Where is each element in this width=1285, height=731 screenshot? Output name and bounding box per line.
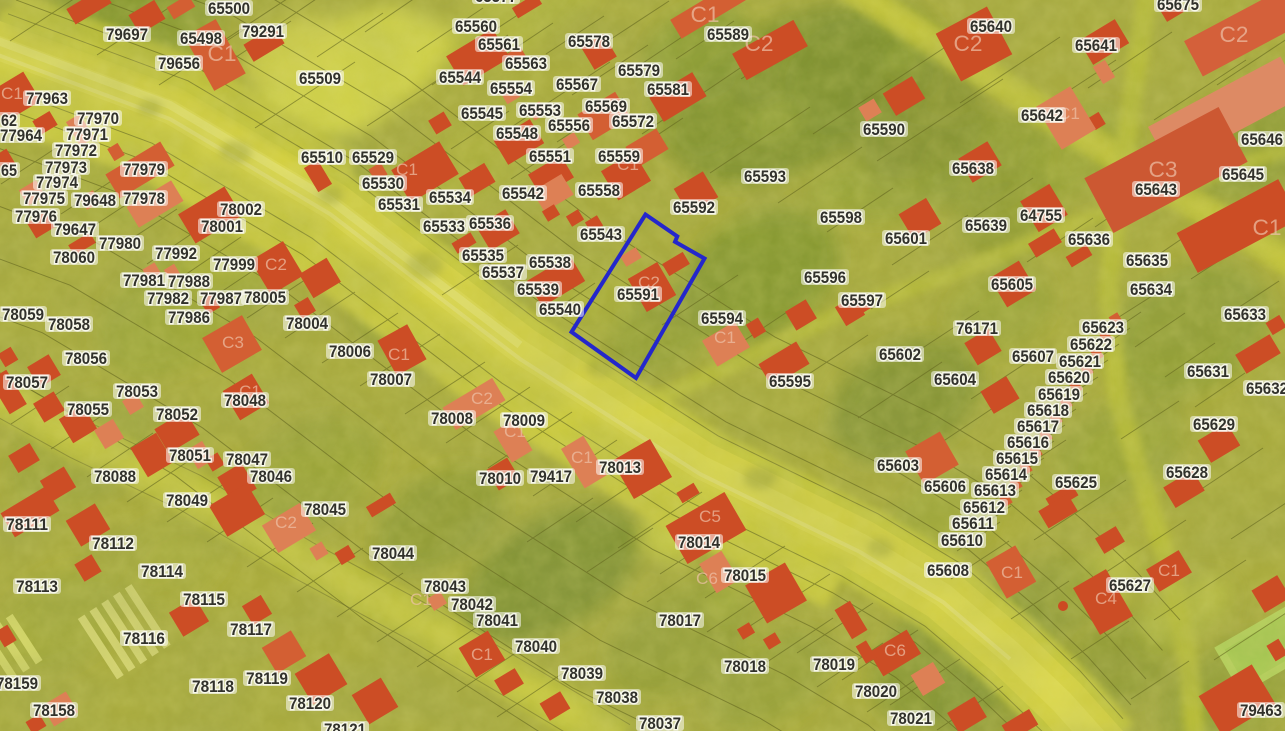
svg-text:65625: 65625 <box>1055 473 1097 492</box>
svg-text:C2: C2 <box>1220 22 1249 47</box>
svg-text:65510: 65510 <box>301 148 343 167</box>
svg-text:79648: 79648 <box>74 191 116 210</box>
svg-text:78006: 78006 <box>329 342 371 361</box>
svg-text:65560: 65560 <box>455 17 497 36</box>
svg-text:79291: 79291 <box>242 22 284 41</box>
svg-text:77979: 77979 <box>123 160 165 179</box>
svg-text:78053: 78053 <box>116 382 158 401</box>
svg-text:C6: C6 <box>696 569 718 588</box>
svg-text:C3: C3 <box>1149 157 1178 182</box>
svg-text:65563: 65563 <box>505 54 547 73</box>
svg-text:65500: 65500 <box>208 0 250 18</box>
svg-text:65639: 65639 <box>965 216 1007 235</box>
svg-text:78112: 78112 <box>92 534 134 553</box>
svg-text:76171: 76171 <box>956 319 998 338</box>
svg-text:65608: 65608 <box>927 561 969 580</box>
svg-text:65567: 65567 <box>556 75 598 94</box>
svg-text:79647: 79647 <box>54 220 96 239</box>
svg-text:65596: 65596 <box>804 268 846 287</box>
svg-text:78049: 78049 <box>166 491 208 510</box>
svg-text:65603: 65603 <box>877 456 919 475</box>
svg-text:65545: 65545 <box>461 104 503 123</box>
svg-text:79463: 79463 <box>1240 701 1282 720</box>
svg-text:77981: 77981 <box>123 271 165 290</box>
svg-text:65642: 65642 <box>1021 106 1063 125</box>
svg-text:65638: 65638 <box>952 159 994 178</box>
svg-text:65572: 65572 <box>612 112 654 131</box>
svg-text:65634: 65634 <box>1130 280 1172 299</box>
svg-text:C3: C3 <box>222 333 244 352</box>
svg-text:78013: 78013 <box>599 458 641 477</box>
svg-text:78056: 78056 <box>65 349 107 368</box>
svg-text:65597: 65597 <box>841 291 883 310</box>
svg-text:65643: 65643 <box>1135 180 1177 199</box>
svg-text:65556: 65556 <box>548 116 590 135</box>
svg-text:65633: 65633 <box>1224 305 1266 324</box>
svg-text:C5: C5 <box>699 507 721 526</box>
svg-text:65591: 65591 <box>617 285 659 304</box>
svg-text:78048: 78048 <box>224 391 266 410</box>
svg-text:65598: 65598 <box>820 208 862 227</box>
svg-text:65635: 65635 <box>1126 251 1168 270</box>
svg-text:65590: 65590 <box>863 120 905 139</box>
svg-text:65540: 65540 <box>539 300 581 319</box>
svg-text:65539: 65539 <box>517 280 559 299</box>
svg-text:65578: 65578 <box>568 32 610 51</box>
svg-text:65675: 65675 <box>1157 0 1199 14</box>
svg-text:65554: 65554 <box>490 79 532 98</box>
svg-text:65602: 65602 <box>879 345 921 364</box>
svg-text:78058: 78058 <box>48 315 90 334</box>
svg-text:C2: C2 <box>265 255 287 274</box>
svg-text:78119: 78119 <box>246 669 288 688</box>
svg-text:65542: 65542 <box>502 184 544 203</box>
svg-text:65641: 65641 <box>1075 36 1117 55</box>
svg-text:78046: 78046 <box>250 467 292 486</box>
svg-text:78041: 78041 <box>476 611 518 630</box>
svg-text:C1: C1 <box>471 645 493 664</box>
svg-text:78057: 78057 <box>6 373 48 392</box>
svg-text:65593: 65593 <box>744 167 786 186</box>
svg-text:65538: 65538 <box>529 253 571 272</box>
svg-text:C2: C2 <box>471 389 493 408</box>
svg-text:78020: 78020 <box>855 682 897 701</box>
svg-text:78015: 78015 <box>724 566 766 585</box>
svg-text:78055: 78055 <box>67 400 109 419</box>
svg-text:C1: C1 <box>691 2 720 27</box>
svg-text:65543: 65543 <box>580 225 622 244</box>
svg-text:78113: 78113 <box>16 577 58 596</box>
svg-text:65533: 65533 <box>423 217 465 236</box>
svg-text:78114: 78114 <box>141 562 183 581</box>
svg-text:62: 62 <box>1 111 17 130</box>
svg-text:65646: 65646 <box>1241 130 1283 149</box>
svg-text:65577: 65577 <box>475 0 517 6</box>
svg-text:78060: 78060 <box>53 248 95 267</box>
svg-text:65645: 65645 <box>1222 165 1264 184</box>
svg-text:65536: 65536 <box>469 214 511 233</box>
svg-text:77992: 77992 <box>155 244 197 263</box>
svg-text:78059: 78059 <box>2 305 44 324</box>
svg-text:78044: 78044 <box>372 544 414 563</box>
svg-text:78117: 78117 <box>230 620 272 639</box>
svg-text:79697: 79697 <box>106 25 148 44</box>
svg-text:77976: 77976 <box>15 207 57 226</box>
svg-text:77975: 77975 <box>23 189 65 208</box>
svg-text:65509: 65509 <box>299 69 341 88</box>
svg-text:65607: 65607 <box>1012 347 1054 366</box>
svg-text:65498: 65498 <box>180 29 222 48</box>
svg-text:78052: 78052 <box>156 405 198 424</box>
svg-text:78115: 78115 <box>183 590 225 609</box>
svg-text:78118: 78118 <box>192 677 234 696</box>
svg-text:78038: 78038 <box>596 688 638 707</box>
svg-text:78004: 78004 <box>286 314 328 333</box>
svg-text:78014: 78014 <box>678 533 720 552</box>
svg-text:65592: 65592 <box>673 198 715 217</box>
svg-text:65559: 65559 <box>598 147 640 166</box>
svg-text:77980: 77980 <box>99 234 141 253</box>
svg-text:78019: 78019 <box>813 655 855 674</box>
svg-text:64755: 64755 <box>1020 206 1062 225</box>
svg-text:78043: 78043 <box>424 577 466 596</box>
svg-text:78010: 78010 <box>479 469 521 488</box>
svg-text:78111: 78111 <box>6 515 48 534</box>
svg-text:C1: C1 <box>1158 561 1180 580</box>
svg-text:65636: 65636 <box>1068 230 1110 249</box>
svg-text:65531: 65531 <box>378 195 420 214</box>
svg-text:C2: C2 <box>275 513 297 532</box>
svg-text:78005: 78005 <box>244 288 286 307</box>
svg-text:C6: C6 <box>884 641 906 660</box>
svg-text:65640: 65640 <box>970 17 1012 36</box>
svg-text:65594: 65594 <box>701 309 743 328</box>
svg-text:C1: C1 <box>714 328 736 347</box>
svg-text:79417: 79417 <box>530 467 572 486</box>
svg-text:77986: 77986 <box>168 308 210 327</box>
svg-text:65530: 65530 <box>362 174 404 193</box>
svg-text:78158: 78158 <box>33 701 75 720</box>
svg-text:78120: 78120 <box>289 694 331 713</box>
svg-text:65558: 65558 <box>578 181 620 200</box>
svg-text:C1: C1 <box>1 84 23 103</box>
svg-text:65561: 65561 <box>478 35 520 54</box>
svg-text:78001: 78001 <box>201 217 243 236</box>
svg-text:77978: 77978 <box>123 189 165 208</box>
svg-text:78021: 78021 <box>890 709 932 728</box>
svg-text:C1: C1 <box>1253 215 1282 240</box>
svg-text:65544: 65544 <box>439 68 481 87</box>
svg-text:65534: 65534 <box>429 188 471 207</box>
svg-text:65548: 65548 <box>496 124 538 143</box>
svg-text:65604: 65604 <box>934 370 976 389</box>
svg-text:C1: C1 <box>571 448 593 467</box>
svg-text:78037: 78037 <box>639 714 681 731</box>
svg-text:78009: 78009 <box>503 411 545 430</box>
svg-text:78045: 78045 <box>304 500 346 519</box>
svg-text:77963: 77963 <box>26 89 68 108</box>
svg-text:65610: 65610 <box>941 531 983 550</box>
svg-text:65601: 65601 <box>885 229 927 248</box>
svg-text:65628: 65628 <box>1166 463 1208 482</box>
svg-text:65606: 65606 <box>924 477 966 496</box>
svg-text:65589: 65589 <box>707 25 749 44</box>
svg-text:C1: C1 <box>388 345 410 364</box>
svg-text:78051: 78051 <box>169 446 211 465</box>
svg-text:65605: 65605 <box>991 275 1033 294</box>
svg-text:78007: 78007 <box>370 370 412 389</box>
svg-text:77987: 77987 <box>200 289 242 308</box>
svg-text:65632: 65632 <box>1246 379 1285 398</box>
svg-text:65627: 65627 <box>1109 576 1151 595</box>
svg-text:65: 65 <box>1 161 17 180</box>
svg-text:78040: 78040 <box>515 637 557 656</box>
svg-text:78008: 78008 <box>431 409 473 428</box>
svg-text:78088: 78088 <box>94 467 136 486</box>
svg-text:78018: 78018 <box>724 657 766 676</box>
svg-text:65529: 65529 <box>352 148 394 167</box>
svg-text:78116: 78116 <box>123 629 165 648</box>
svg-text:77999: 77999 <box>213 255 255 274</box>
svg-text:78159: 78159 <box>0 674 38 693</box>
svg-text:65581: 65581 <box>647 80 689 99</box>
svg-text:65595: 65595 <box>769 372 811 391</box>
svg-text:79656: 79656 <box>158 54 200 73</box>
svg-text:78121: 78121 <box>324 720 366 731</box>
svg-text:78017: 78017 <box>659 611 701 630</box>
svg-text:78039: 78039 <box>561 664 603 683</box>
svg-text:65551: 65551 <box>529 147 571 166</box>
svg-text:77982: 77982 <box>147 289 189 308</box>
svg-text:65579: 65579 <box>618 61 660 80</box>
svg-text:65631: 65631 <box>1187 362 1229 381</box>
svg-text:C1: C1 <box>1001 563 1023 582</box>
svg-text:65629: 65629 <box>1193 415 1235 434</box>
